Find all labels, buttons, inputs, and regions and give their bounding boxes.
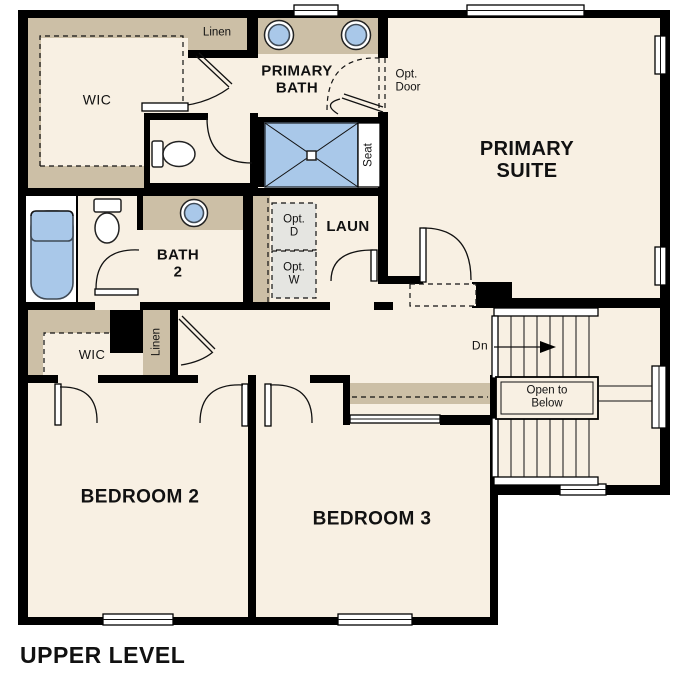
- label-bedroom3: BEDROOM 3: [313, 510, 432, 531]
- window-bedroom3: [338, 614, 412, 625]
- floor-plan: Linen PRIMARY BATH Opt. Door PRIMARY SUI…: [0, 0, 687, 687]
- bathtub: [26, 196, 76, 302]
- stair-bottom-nosing: [494, 477, 598, 485]
- page-title: UPPER LEVEL: [20, 643, 185, 668]
- label-primary-suite: PRIMARY SUITE: [480, 138, 574, 182]
- label-wic-primary: WIC: [83, 92, 111, 107]
- optional-opening: [410, 284, 476, 306]
- stair-top-nosing: [494, 308, 598, 316]
- label-bedroom2: BEDROOM 2: [81, 488, 200, 509]
- label-stairs-down: Dn: [472, 339, 488, 352]
- label-linen-upper: Linen: [203, 27, 231, 40]
- window-stair-right: [652, 366, 666, 428]
- stair-rail-lower: [492, 418, 498, 477]
- bedroom3-closet-shelf: [350, 383, 490, 404]
- window-primary-bath: [294, 5, 338, 16]
- vanity-sink-2: [342, 21, 371, 50]
- label-laundry: LAUN: [326, 219, 369, 236]
- toilet-bath2: [94, 199, 121, 243]
- window-suite-right-1: [655, 36, 666, 74]
- label-primary-bath: PRIMARY BATH: [261, 64, 332, 97]
- window-primary-suite-top: [467, 5, 584, 16]
- wic2-shelf-left: [28, 310, 43, 375]
- bedroom3-closet-doors: [350, 415, 440, 423]
- label-wic-secondary: WIC: [79, 348, 105, 362]
- vanity-sink-1: [265, 21, 294, 50]
- label-seat: Seat: [363, 143, 376, 167]
- window-suite-right-2: [655, 247, 666, 285]
- label-opt-washer: Opt. W: [283, 261, 305, 286]
- shower-drain: [307, 151, 316, 160]
- wic-shelf-left: [28, 16, 41, 188]
- window-bedroom2: [103, 614, 173, 625]
- label-open-to-below: Open to Below: [527, 384, 568, 409]
- label-opt-dryer: Opt. D: [283, 213, 305, 238]
- label-linen-hall: Linen: [151, 328, 164, 356]
- label-opt-door: Opt. Door: [396, 68, 421, 93]
- wic-shelf-bottom: [28, 166, 144, 188]
- bath2-sink: [181, 200, 208, 227]
- toilet-primary: [152, 141, 195, 167]
- wic-shelf-top: [28, 16, 188, 38]
- label-bath2: BATH 2: [157, 248, 199, 281]
